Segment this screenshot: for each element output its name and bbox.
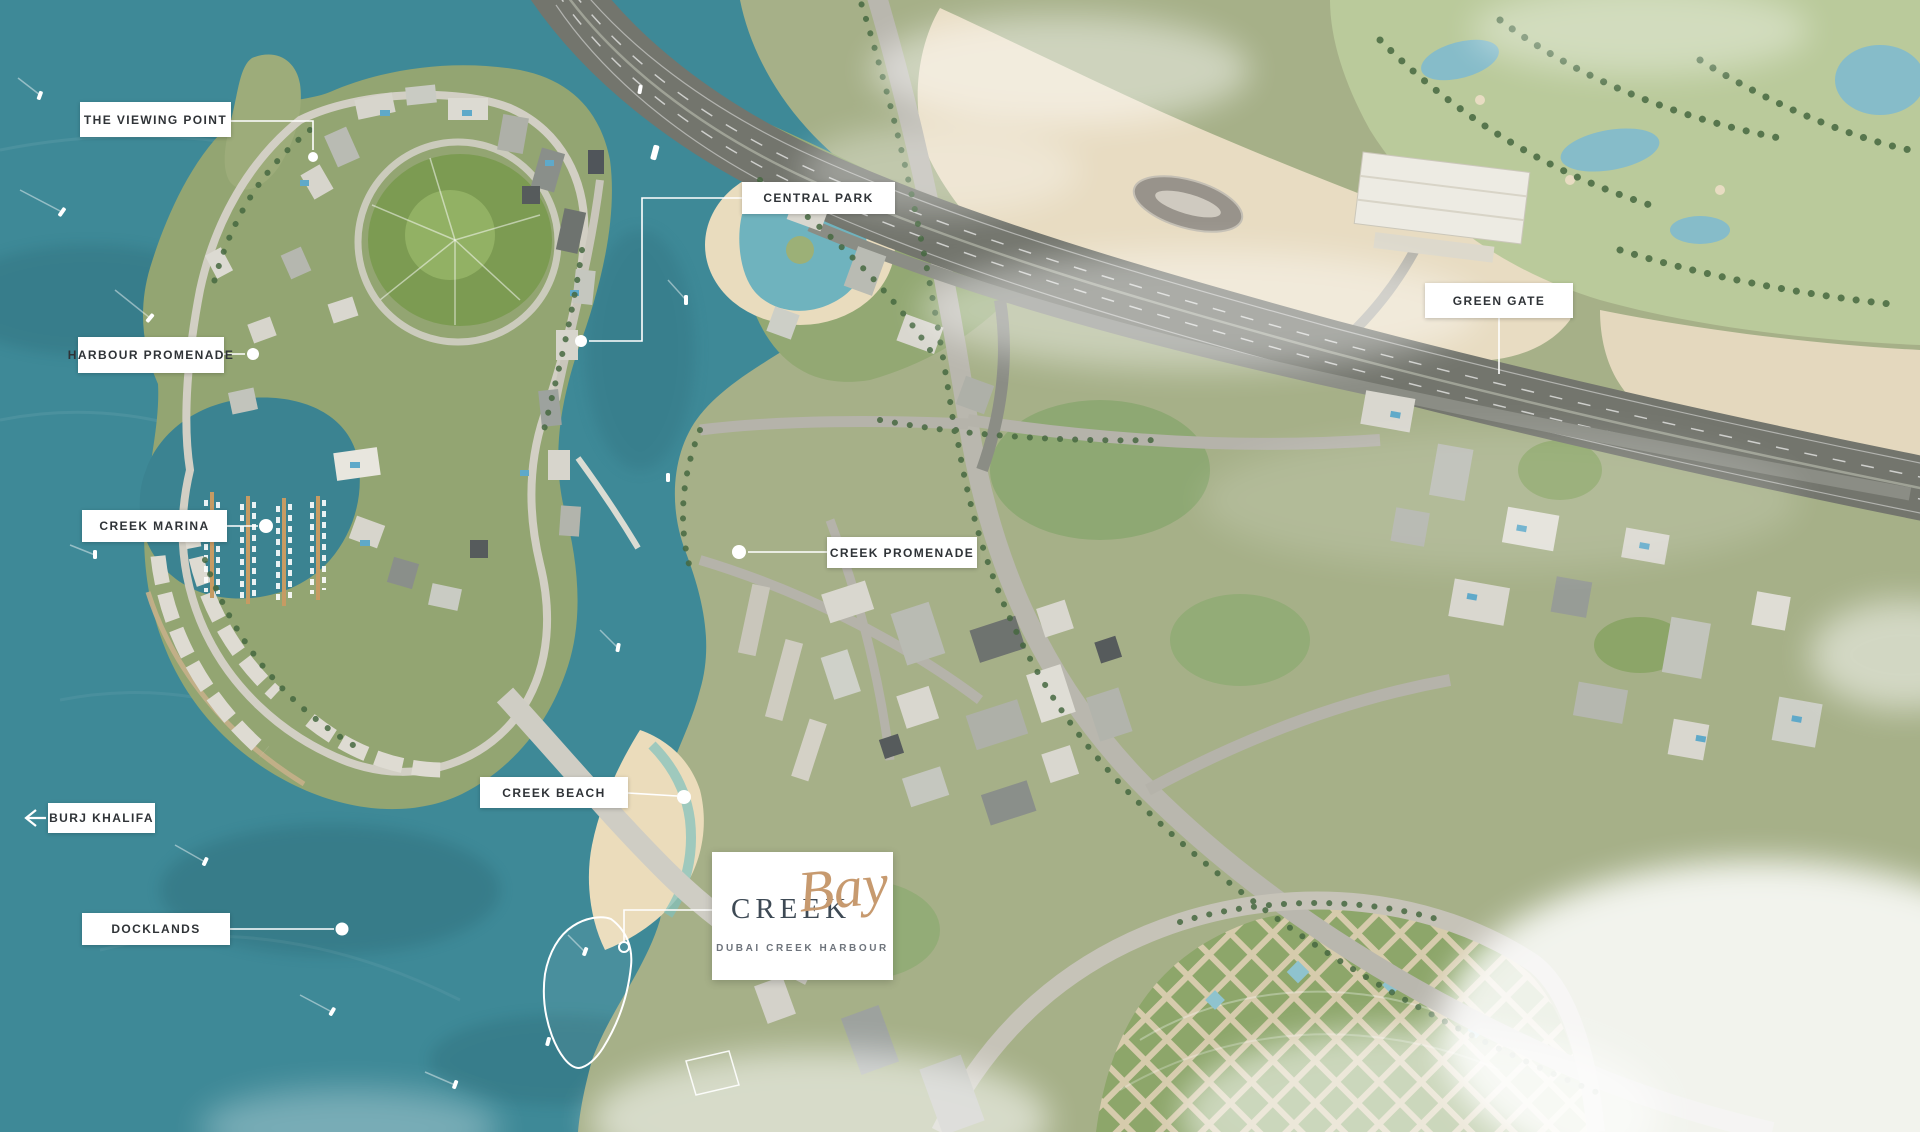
label-text: CREEK MARINA [99,519,209,533]
label-text: CREEK PROMENADE [830,546,974,560]
label-text: CENTRAL PARK [763,191,873,205]
label-creek-promenade[interactable]: CREEK PROMENADE [827,537,977,568]
label-green-gate[interactable]: GREEN GATE [1425,283,1573,318]
label-text: HARBOUR PROMENADE [68,348,234,362]
logo-brand-script: Bay [795,849,892,925]
label-text: GREEN GATE [1453,294,1545,308]
logo-subtitle: DUBAI CREEK HARBOUR [712,943,893,954]
label-the-viewing-point[interactable]: THE VIEWING POINT [80,102,231,137]
creek-bay-logo-card: CREEK Bay DUBAI CREEK HARBOUR [712,852,893,980]
label-docklands[interactable]: DOCKLANDS [82,913,230,945]
label-central-park[interactable]: CENTRAL PARK [742,182,895,214]
label-text: CREEK BEACH [502,786,605,800]
label-harbour-promenade[interactable]: HARBOUR PROMENADE [78,337,224,373]
label-text: BURJ KHALIFA [49,811,154,825]
label-text: DOCKLANDS [111,922,200,936]
label-burj-khalifa[interactable]: BURJ KHALIFA [48,803,155,833]
label-text: THE VIEWING POINT [84,113,227,127]
label-creek-beach[interactable]: CREEK BEACH [480,777,628,808]
label-creek-marina[interactable]: CREEK MARINA [82,510,227,542]
dubai-creek-harbour-masterplan: THE VIEWING POINT CENTRAL PARK GREEN GAT… [0,0,1920,1132]
